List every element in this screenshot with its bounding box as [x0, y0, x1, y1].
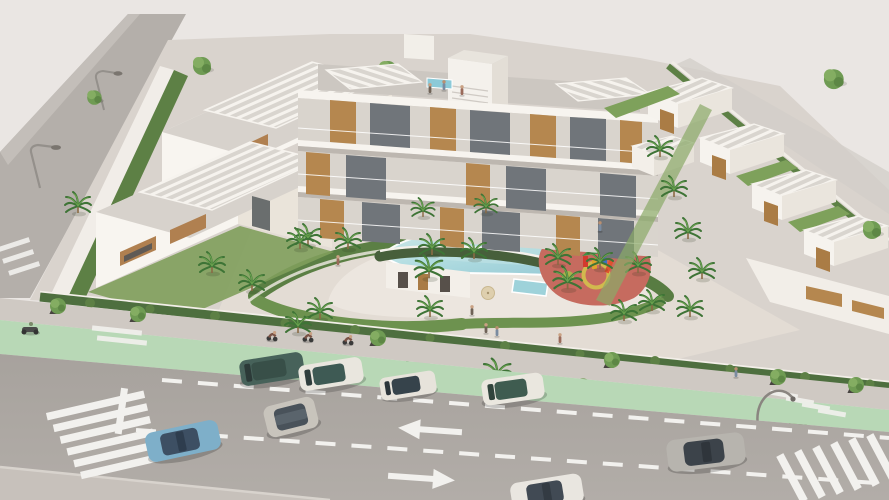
patio-umbrella	[482, 287, 495, 300]
architectural-render	[0, 0, 889, 500]
render-canvas	[0, 0, 889, 500]
